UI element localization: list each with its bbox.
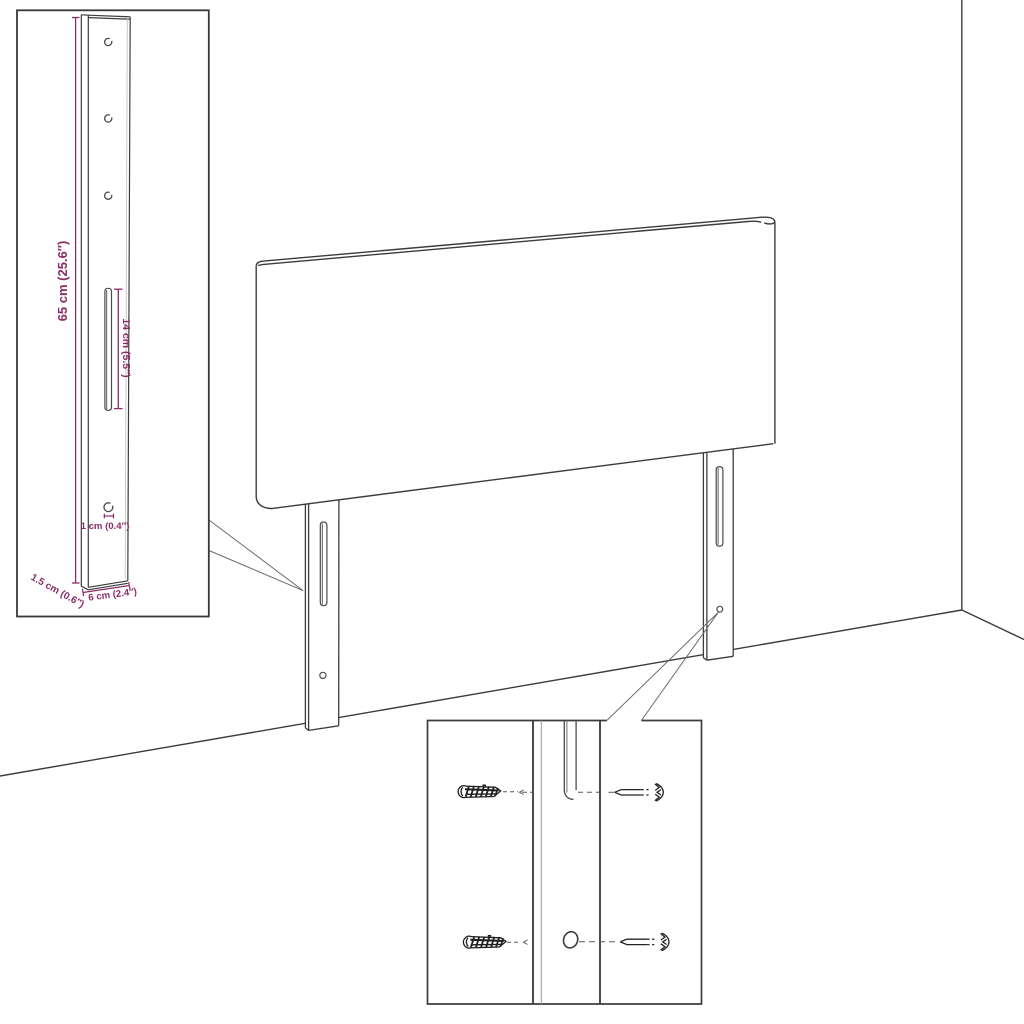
svg-text:65 cm (25.6″): 65 cm (25.6″) bbox=[55, 241, 70, 322]
svg-text:1 cm (0.4″): 1 cm (0.4″) bbox=[81, 521, 130, 532]
svg-text:14 cm (5.5″): 14 cm (5.5″) bbox=[120, 318, 132, 377]
